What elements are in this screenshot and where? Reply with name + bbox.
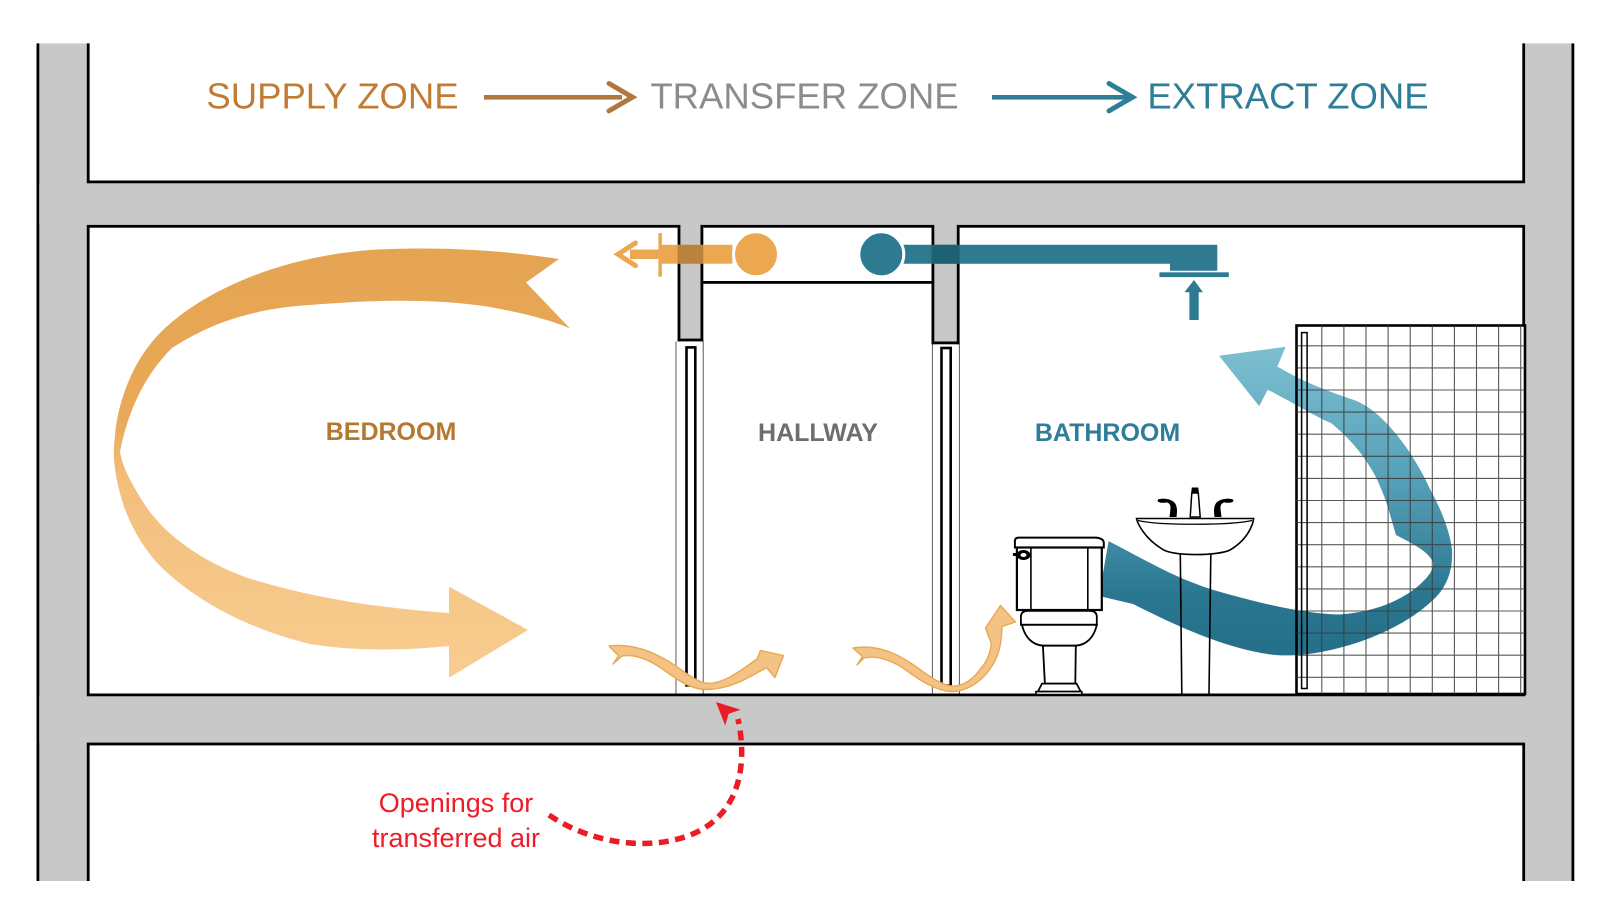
svg-text:HALLWAY: HALLWAY [758, 419, 878, 447]
svg-text:Openings for: Openings for [379, 788, 534, 818]
svg-text:transferred air: transferred air [372, 823, 540, 853]
svg-text:BEDROOM: BEDROOM [326, 418, 457, 446]
svg-text:EXTRACT ZONE: EXTRACT ZONE [1147, 76, 1428, 117]
svg-text:TRANSFER ZONE: TRANSFER ZONE [650, 76, 958, 117]
svg-text:SUPPLY ZONE: SUPPLY ZONE [206, 76, 458, 117]
svg-text:BATHROOM: BATHROOM [1035, 419, 1180, 447]
